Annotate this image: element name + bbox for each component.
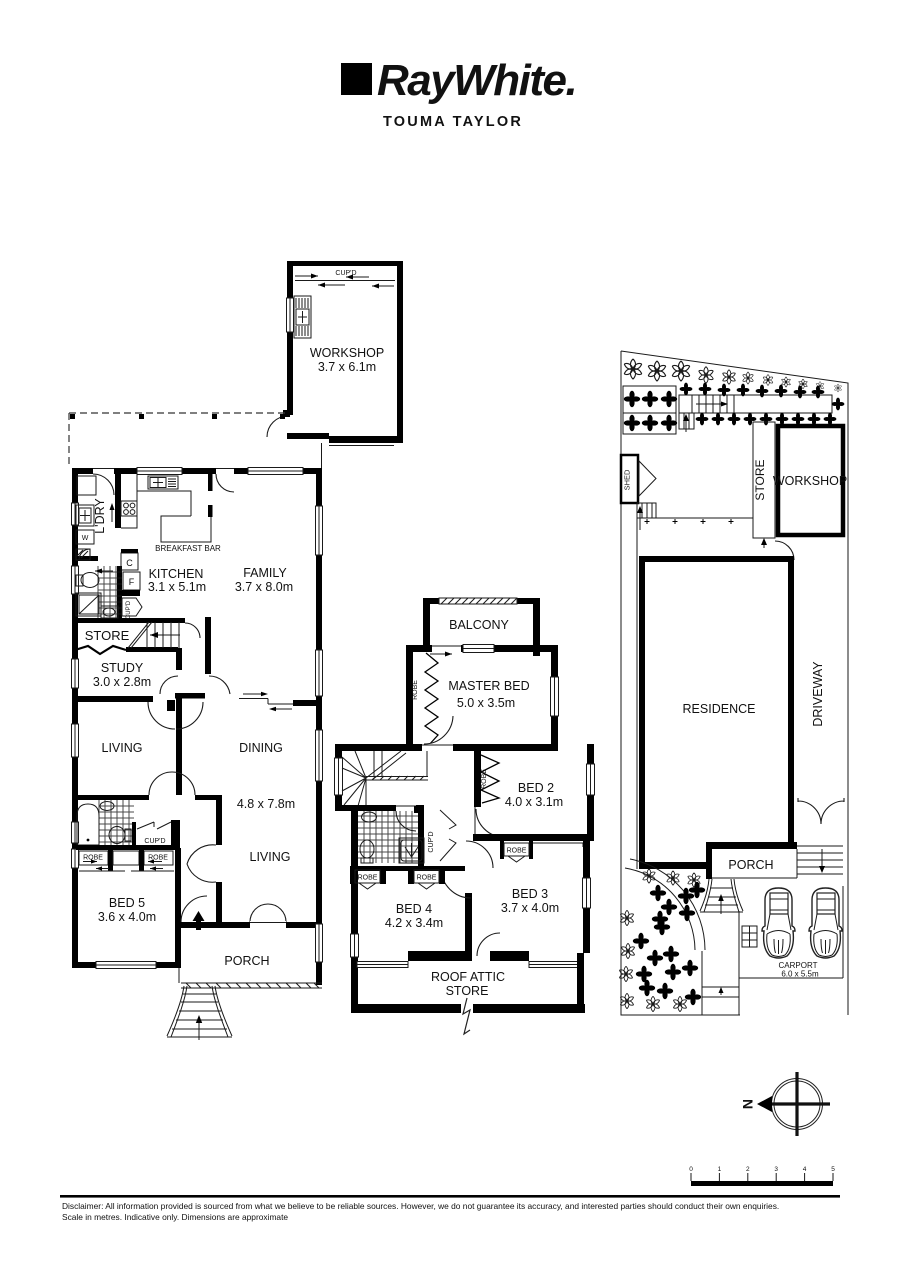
svg-text:PORCH: PORCH xyxy=(224,954,269,968)
svg-text:5.0 x 3.5m: 5.0 x 3.5m xyxy=(457,696,515,710)
svg-text:DINING: DINING xyxy=(239,741,283,755)
svg-text:STUDY: STUDY xyxy=(101,661,144,675)
svg-text:STORE: STORE xyxy=(753,459,767,500)
svg-text:CUP'D: CUP'D xyxy=(144,838,165,845)
svg-text:ROBE: ROBE xyxy=(481,769,488,789)
svg-text:N: N xyxy=(740,1099,756,1109)
svg-text:Disclaimer: All information pr: Disclaimer: All information provided is … xyxy=(62,1201,779,1211)
svg-text:STORE: STORE xyxy=(85,628,130,643)
svg-text:ROBE: ROBE xyxy=(412,680,419,700)
svg-text:3.0 x 2.8m: 3.0 x 2.8m xyxy=(93,675,151,689)
svg-text:BED 3: BED 3 xyxy=(512,887,548,901)
svg-text:LIVING: LIVING xyxy=(102,741,143,755)
svg-text:ROOF ATTIC: ROOF ATTIC xyxy=(431,970,505,984)
svg-text:SHED: SHED xyxy=(623,469,632,490)
svg-text:WORKSHOP: WORKSHOP xyxy=(773,474,847,488)
svg-text:0: 0 xyxy=(689,1166,693,1173)
svg-text:CUP'D: CUP'D xyxy=(126,600,132,619)
svg-text:ROBE: ROBE xyxy=(358,875,378,882)
svg-text:WORKSHOP: WORKSHOP xyxy=(310,346,384,360)
svg-text:LIVING: LIVING xyxy=(250,850,291,864)
svg-text:BED 2: BED 2 xyxy=(518,781,554,795)
svg-text:4.8 x 7.8m: 4.8 x 7.8m xyxy=(237,797,295,811)
svg-text:ROBE: ROBE xyxy=(417,875,437,882)
svg-text:4: 4 xyxy=(803,1166,807,1173)
svg-text:Scale in metres. Indicative on: Scale in metres. Indicative only. Dimens… xyxy=(62,1212,288,1222)
svg-text:KITCHEN: KITCHEN xyxy=(149,567,204,581)
svg-text:3.1 x 5.1m: 3.1 x 5.1m xyxy=(148,580,206,594)
svg-text:BED 5: BED 5 xyxy=(109,896,145,910)
svg-text:RayWhite.: RayWhite. xyxy=(377,56,576,105)
svg-text:BALCONY: BALCONY xyxy=(449,618,509,632)
svg-text:C: C xyxy=(126,558,133,568)
svg-text:RESIDENCE: RESIDENCE xyxy=(683,702,756,716)
svg-text:STORE: STORE xyxy=(446,984,489,998)
svg-text:CUP'D: CUP'D xyxy=(428,831,435,852)
svg-text:DRIVEWAY: DRIVEWAY xyxy=(811,661,825,727)
svg-text:BED 4: BED 4 xyxy=(396,902,432,916)
svg-text:F: F xyxy=(129,577,135,587)
svg-text:L'DRY: L'DRY xyxy=(93,498,107,534)
svg-text:FAMILY: FAMILY xyxy=(243,566,287,580)
svg-text:2: 2 xyxy=(746,1166,750,1173)
svg-text:3.7 x 6.1m: 3.7 x 6.1m xyxy=(318,360,376,374)
svg-text:3.7 x 4.0m: 3.7 x 4.0m xyxy=(501,901,559,915)
svg-text:TOUMA TAYLOR: TOUMA TAYLOR xyxy=(383,114,523,130)
svg-text:1: 1 xyxy=(718,1166,722,1173)
svg-text:CUP'D: CUP'D xyxy=(335,270,356,277)
svg-text:6.0 x 5.5m: 6.0 x 5.5m xyxy=(781,970,819,979)
svg-text:3: 3 xyxy=(774,1166,778,1173)
svg-text:BREAKFAST BAR: BREAKFAST BAR xyxy=(155,544,221,553)
svg-text:MASTER BED: MASTER BED xyxy=(448,679,529,693)
svg-text:3.7 x 8.0m: 3.7 x 8.0m xyxy=(235,580,293,594)
svg-text:4.2 x 3.4m: 4.2 x 3.4m xyxy=(385,916,443,930)
svg-text:ROBE: ROBE xyxy=(507,848,527,855)
svg-text:3.6 x 4.0m: 3.6 x 4.0m xyxy=(98,910,156,924)
svg-text:5: 5 xyxy=(831,1166,835,1173)
svg-text:PORCH: PORCH xyxy=(728,858,773,872)
svg-text:W: W xyxy=(82,535,89,542)
svg-text:4.0 x 3.1m: 4.0 x 3.1m xyxy=(505,795,563,809)
